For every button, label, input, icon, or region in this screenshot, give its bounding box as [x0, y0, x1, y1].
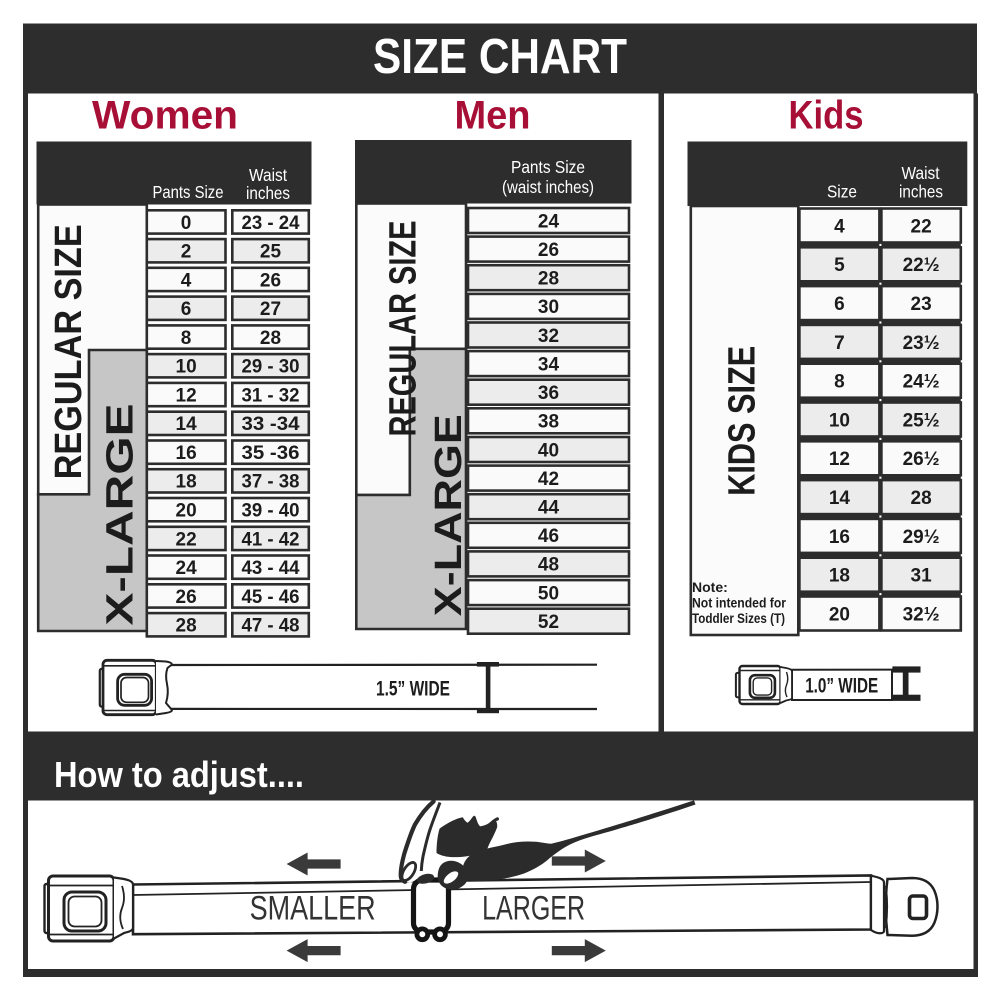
svg-text:24½: 24½	[903, 372, 940, 393]
svg-text:26: 26	[176, 587, 197, 608]
svg-text:40: 40	[538, 440, 559, 461]
svg-text:8: 8	[834, 372, 845, 393]
svg-text:20: 20	[829, 604, 850, 625]
svg-text:Waist: Waist	[249, 165, 287, 185]
svg-text:26: 26	[260, 270, 281, 291]
svg-text:5: 5	[834, 255, 845, 276]
svg-text:1.5” WIDE: 1.5” WIDE	[376, 677, 450, 701]
svg-text:52: 52	[538, 612, 559, 633]
svg-text:44: 44	[538, 498, 560, 519]
svg-text:SMALLER: SMALLER	[250, 890, 376, 928]
svg-text:23: 23	[911, 294, 932, 315]
svg-text:27: 27	[260, 299, 281, 320]
svg-text:33 -34: 33 -34	[242, 414, 300, 435]
svg-text:10: 10	[829, 410, 850, 431]
svg-text:28: 28	[911, 488, 932, 509]
svg-text:22: 22	[176, 529, 197, 550]
svg-text:29½: 29½	[903, 527, 940, 548]
svg-text:28: 28	[260, 328, 281, 349]
svg-text:6: 6	[834, 294, 845, 315]
svg-text:18: 18	[829, 566, 850, 587]
svg-text:Kids: Kids	[789, 94, 864, 138]
svg-text:14: 14	[829, 488, 851, 509]
svg-text:12: 12	[176, 385, 197, 406]
svg-text:6: 6	[181, 299, 192, 320]
svg-text:10: 10	[176, 357, 197, 378]
svg-text:(waist inches): (waist inches)	[502, 177, 594, 197]
svg-text:26½: 26½	[903, 449, 940, 470]
svg-text:35 -36: 35 -36	[242, 443, 300, 464]
svg-text:inches: inches	[246, 183, 290, 203]
svg-text:14: 14	[176, 414, 198, 435]
svg-text:28: 28	[176, 616, 197, 637]
svg-text:KIDS SIZE: KIDS SIZE	[721, 346, 763, 496]
svg-text:Men: Men	[455, 94, 531, 138]
svg-text:Pants Size: Pants Size	[153, 182, 224, 202]
svg-text:18: 18	[176, 472, 197, 493]
svg-text:22: 22	[911, 216, 932, 237]
svg-text:Toddler Sizes (T): Toddler Sizes (T)	[692, 610, 785, 626]
svg-text:46: 46	[538, 526, 559, 547]
svg-text:8: 8	[181, 328, 192, 349]
svg-text:16: 16	[176, 443, 197, 464]
svg-text:36: 36	[538, 383, 559, 404]
svg-text:28: 28	[538, 269, 559, 290]
svg-text:23½: 23½	[903, 333, 940, 354]
svg-text:Size: Size	[827, 182, 857, 202]
svg-text:How to adjust....: How to adjust....	[54, 754, 304, 795]
svg-text:2: 2	[181, 242, 192, 263]
svg-text:20: 20	[176, 501, 197, 522]
svg-text:1.0” WIDE: 1.0” WIDE	[805, 674, 878, 698]
svg-text:Note:: Note:	[692, 579, 728, 595]
svg-text:inches: inches	[899, 182, 943, 202]
svg-text:24: 24	[176, 558, 198, 579]
svg-text:Not intended for: Not intended for	[692, 595, 786, 611]
svg-text:32½: 32½	[903, 604, 940, 625]
svg-text:47 - 48: 47 - 48	[242, 616, 300, 637]
svg-text:X-LARGE: X-LARGE	[100, 404, 142, 626]
svg-text:25½: 25½	[903, 410, 940, 431]
svg-text:24: 24	[538, 211, 560, 232]
svg-text:23 - 24: 23 - 24	[242, 213, 300, 234]
svg-text:REGULAR SIZE: REGULAR SIZE	[383, 221, 425, 437]
svg-text:31 - 32: 31 - 32	[242, 385, 300, 406]
svg-text:7: 7	[834, 333, 845, 354]
svg-text:Women: Women	[92, 94, 238, 138]
svg-text:30: 30	[538, 297, 559, 318]
svg-text:Pants Size: Pants Size	[511, 157, 585, 177]
svg-text:26: 26	[538, 240, 559, 261]
svg-text:32: 32	[538, 326, 559, 347]
svg-text:LARGER: LARGER	[482, 890, 585, 928]
svg-text:0: 0	[181, 213, 192, 234]
svg-text:34: 34	[538, 354, 560, 375]
svg-text:X-LARGE: X-LARGE	[428, 414, 470, 616]
svg-text:31: 31	[911, 566, 933, 587]
svg-text:12: 12	[829, 449, 850, 470]
svg-text:4: 4	[834, 216, 845, 237]
svg-text:48: 48	[538, 555, 559, 576]
svg-text:4: 4	[181, 270, 192, 291]
svg-text:38: 38	[538, 412, 559, 433]
svg-text:22½: 22½	[903, 255, 940, 276]
svg-text:25: 25	[260, 242, 282, 263]
svg-text:45 - 46: 45 - 46	[242, 587, 300, 608]
svg-text:SIZE CHART: SIZE CHART	[373, 30, 627, 84]
svg-text:43 - 44: 43 - 44	[242, 558, 300, 579]
svg-text:50: 50	[538, 583, 559, 604]
svg-text:42: 42	[538, 469, 559, 490]
svg-text:37 - 38: 37 - 38	[242, 472, 300, 493]
svg-text:REGULAR SIZE: REGULAR SIZE	[48, 224, 90, 479]
svg-text:16: 16	[829, 527, 850, 548]
svg-text:41 - 42: 41 - 42	[242, 529, 300, 550]
svg-text:Waist: Waist	[902, 163, 940, 183]
svg-text:29 - 30: 29 - 30	[242, 357, 300, 378]
svg-text:39 - 40: 39 - 40	[242, 501, 300, 522]
